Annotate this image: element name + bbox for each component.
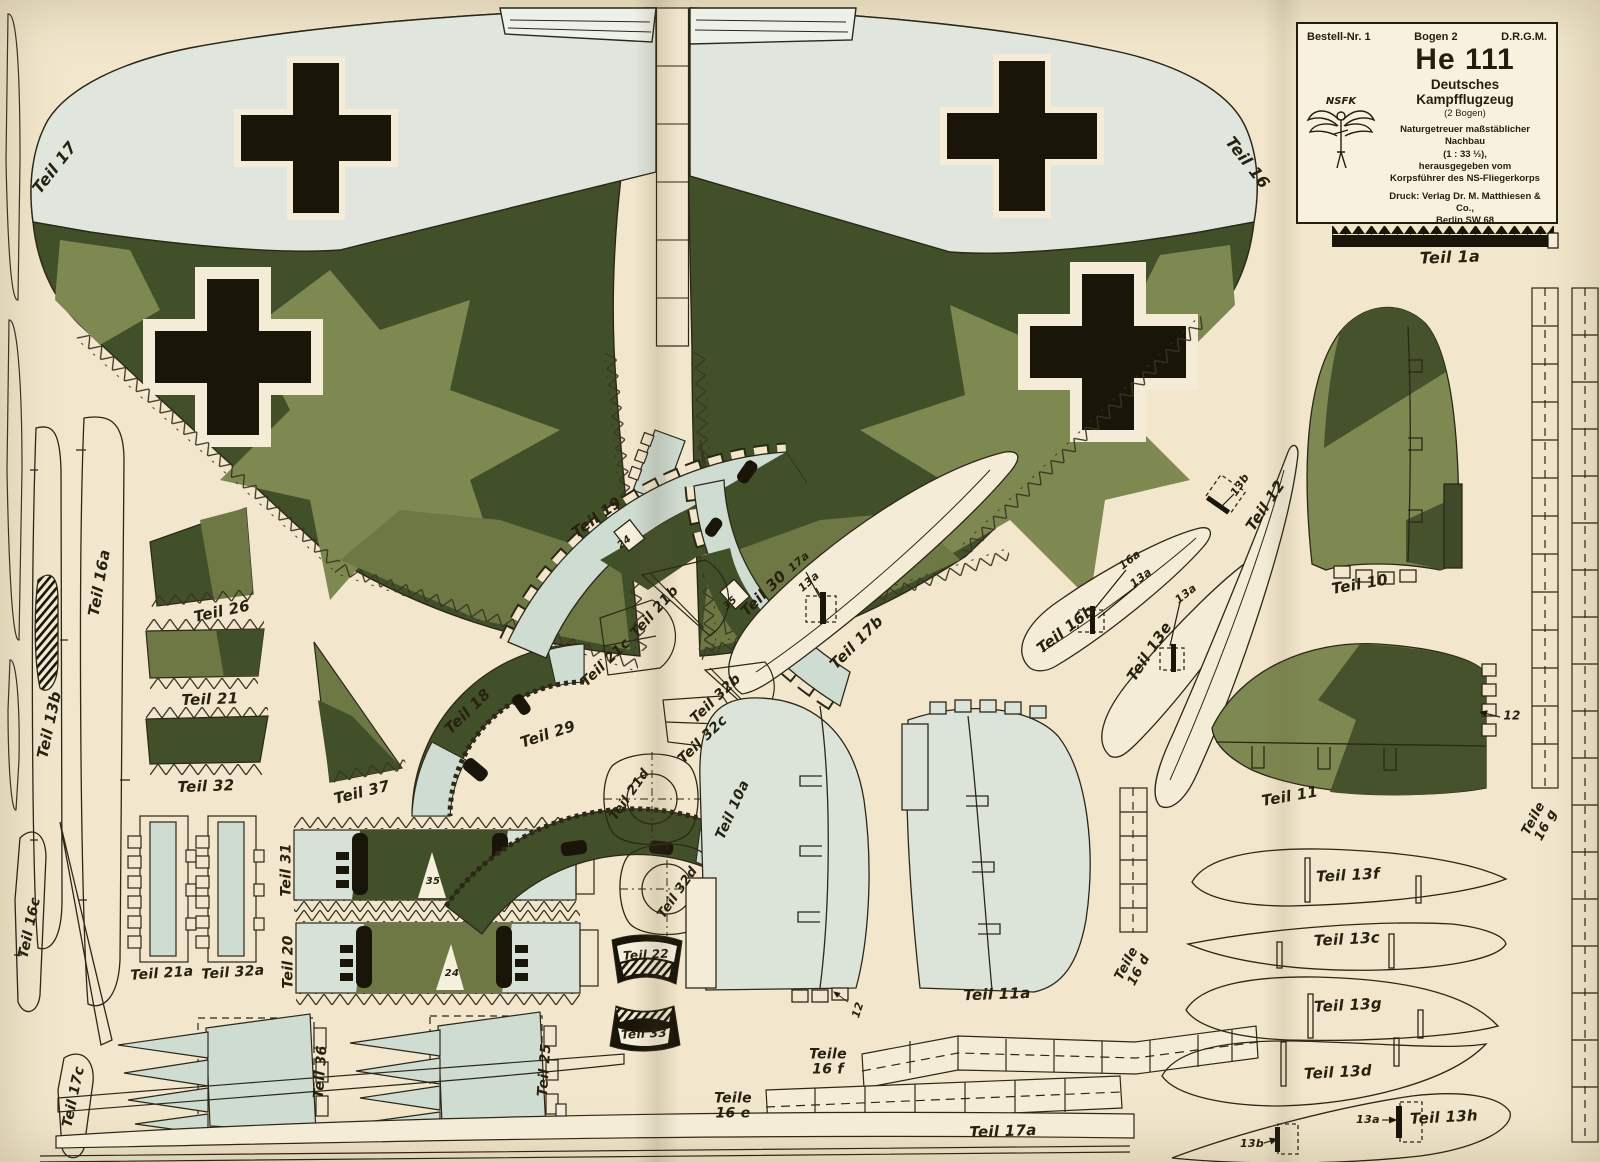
- nsfk-emblem: NSFK: [1304, 90, 1378, 190]
- part-teil-36: [118, 1014, 328, 1136]
- part-label: 24: [445, 969, 460, 980]
- part-label: Teil 20: [282, 935, 297, 988]
- sheet-number: Bogen 2: [1414, 31, 1457, 43]
- part-teil-11: [1212, 644, 1500, 796]
- desc-line-3: herausgegeben vom: [1383, 161, 1547, 173]
- part-label: Teil 13h: [1410, 1108, 1479, 1127]
- part-label: 13b: [1240, 1138, 1264, 1150]
- part-label: Teil 1a: [1420, 249, 1481, 268]
- part-label: Teil 13g: [1314, 996, 1383, 1015]
- part-teil-11a: [902, 700, 1090, 992]
- papercraft-sheet: Bestell-Nr. 1 Bogen 2 D.R.G.M. NSFK He 1…: [0, 0, 1600, 1162]
- drgm-mark: D.R.G.M.: [1501, 31, 1547, 43]
- part-label: Teil 21: [181, 691, 238, 709]
- part-label: 12: [1503, 710, 1520, 723]
- desc-line-4: Korpsführer des NS-Fliegerkorps: [1383, 173, 1547, 185]
- part-label: Teil 33: [621, 1027, 668, 1042]
- order-number: Bestell-Nr. 1: [1307, 31, 1371, 43]
- part-teil-20: [296, 910, 598, 1005]
- part-label: Teile 16 e: [714, 1091, 752, 1120]
- part-teil-10: [1307, 307, 1462, 584]
- ladders-teile-16g: [1532, 288, 1598, 1142]
- part-teil-26: [150, 508, 254, 607]
- part-label: Teil 13c: [1314, 930, 1381, 949]
- printer-line-1: Druck: Verlag Dr. M. Matthiesen & Co.,: [1383, 191, 1547, 216]
- part-label: 35: [426, 877, 441, 888]
- part-label: Teil 17a: [969, 1123, 1037, 1141]
- part-teil-21a: [128, 816, 196, 962]
- printer-line-2: Berlin SW 68: [1383, 215, 1547, 227]
- fold-shadow-left: [634, 0, 680, 1162]
- part-label: Teil 31: [280, 843, 295, 896]
- desc-line-2: (1 : 33 ⅓),: [1383, 149, 1547, 161]
- ladder-teile-16d: [1120, 788, 1147, 932]
- logo-text: NSFK: [1326, 96, 1357, 107]
- part-teil-32a: [196, 816, 264, 962]
- part-label: Teil 13f: [1316, 866, 1381, 885]
- model-title: He 111: [1383, 45, 1547, 75]
- part-teil-10a: [686, 698, 869, 1002]
- part-label: Teil 11a: [963, 986, 1031, 1004]
- part-teil-21: [146, 619, 264, 689]
- model-subtitle: Deutsches Kampfflugzeug: [1383, 77, 1547, 107]
- part-label: 13a: [1356, 1114, 1380, 1126]
- sheet-count: (2 Bogen): [1383, 108, 1547, 119]
- spar-teil-13b: [30, 427, 68, 949]
- part-teil-37: [314, 642, 407, 783]
- part-label: Teil 22: [623, 948, 670, 963]
- spar-teil-16a: [76, 417, 130, 1006]
- part-label: Teile 16 f: [809, 1047, 847, 1076]
- part-teil-32: [146, 707, 268, 775]
- part-teil-1a: [1332, 226, 1558, 248]
- title-box: Bestell-Nr. 1 Bogen 2 D.R.G.M. NSFK He 1…: [1296, 22, 1558, 224]
- sheet-edge-scraps: [6, 14, 22, 810]
- desc-line-1: Naturgetreuer maßstäblicher Nachbau: [1383, 124, 1547, 149]
- part-label: Teil 32: [177, 778, 234, 796]
- part-label: Teil 13d: [1304, 1063, 1373, 1082]
